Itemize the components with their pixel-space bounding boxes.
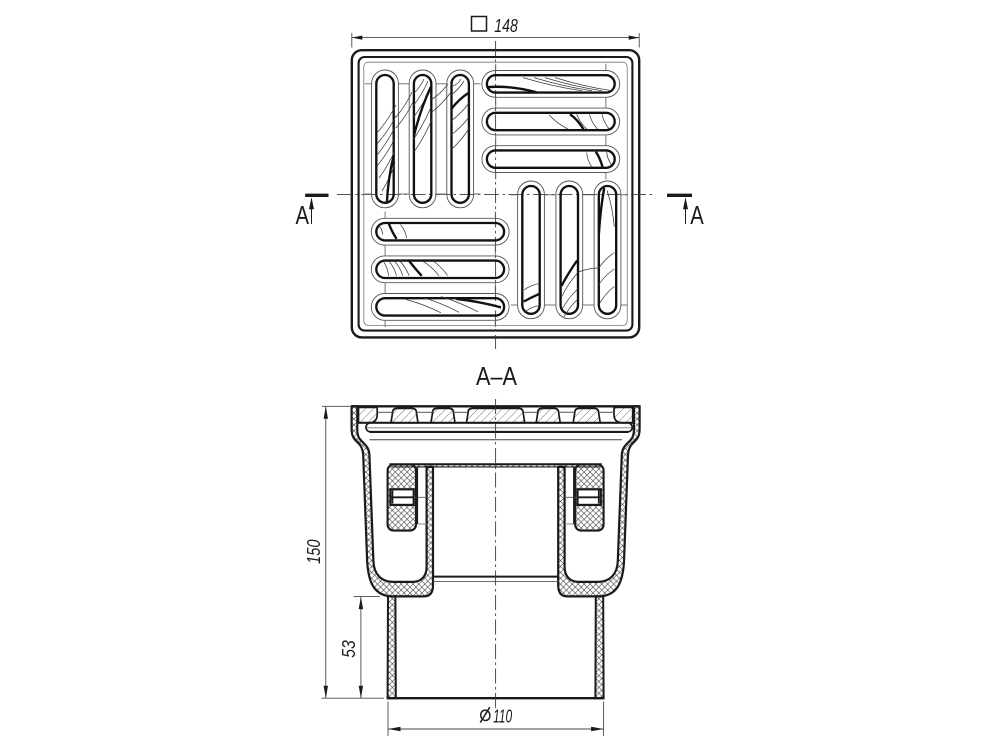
svg-text:A–A: A–A (476, 361, 518, 391)
svg-text:150: 150 (303, 539, 324, 564)
svg-text:148: 148 (494, 15, 518, 36)
svg-text:110: 110 (493, 706, 512, 727)
svg-text:53: 53 (338, 640, 359, 658)
svg-text:A: A (690, 200, 704, 230)
svg-text:A: A (296, 200, 310, 230)
